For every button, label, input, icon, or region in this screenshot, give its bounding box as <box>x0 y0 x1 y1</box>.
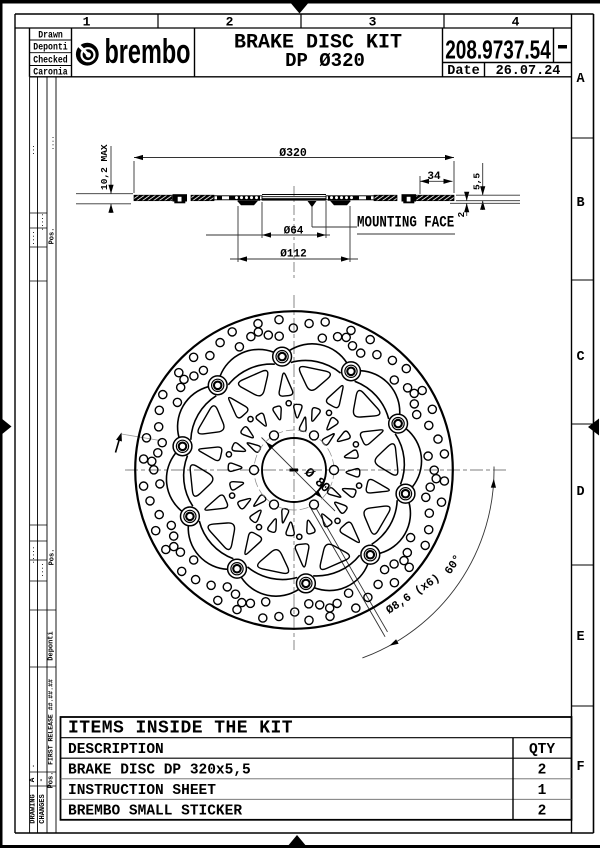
svg-text:2: 2 <box>456 212 467 218</box>
svg-text:MOUNTING FACE: MOUNTING FACE <box>357 214 455 232</box>
svg-text:Caronia: Caronia <box>33 66 68 78</box>
svg-text:ITEMS INSIDE THE KIT: ITEMS INSIDE THE KIT <box>68 719 293 739</box>
svg-text:C: C <box>576 350 584 365</box>
svg-text:Ø320: Ø320 <box>279 147 307 160</box>
svg-text:Pos.: Pos. <box>48 772 56 789</box>
svg-text:Deponti: Deponti <box>48 631 56 660</box>
svg-text:....: .... <box>49 136 56 150</box>
svg-text:2: 2 <box>226 15 234 30</box>
svg-text:D: D <box>576 485 584 500</box>
svg-text:2: 2 <box>538 803 547 819</box>
svg-text:.....: ..... <box>29 546 36 564</box>
svg-text:.....: ..... <box>38 213 45 231</box>
svg-text:4: 4 <box>512 15 520 30</box>
svg-text:Checked: Checked <box>33 53 67 65</box>
svg-text:F: F <box>576 760 584 775</box>
svg-text:A: A <box>576 72 585 87</box>
svg-text:DESCRIPTION: DESCRIPTION <box>68 742 164 758</box>
svg-text:1: 1 <box>83 15 91 30</box>
svg-text:10,2 MAX: 10,2 MAX <box>99 144 110 190</box>
svg-text:Drawn: Drawn <box>38 28 63 40</box>
svg-text:Pos.: Pos. <box>49 549 57 566</box>
svg-text:BREMBO SMALL STICKER: BREMBO SMALL STICKER <box>68 803 242 819</box>
svg-text:26.07.24: 26.07.24 <box>496 64 561 79</box>
svg-text:A: A <box>29 777 37 782</box>
svg-text:3: 3 <box>369 15 377 30</box>
svg-text:brembo: brembo <box>105 34 191 71</box>
svg-text:-: - <box>38 778 46 783</box>
svg-text:208.9737.54: 208.9737.54 <box>445 35 551 65</box>
svg-text:DP Ø320: DP Ø320 <box>285 50 365 72</box>
svg-text:Pos.: Pos. <box>49 228 57 245</box>
svg-text:DRAWING: DRAWING <box>30 794 38 823</box>
svg-text:34: 34 <box>427 171 441 183</box>
svg-text:Ø112: Ø112 <box>280 249 306 261</box>
svg-text:Deponti: Deponti <box>33 41 68 53</box>
svg-text:....: .... <box>38 563 45 577</box>
svg-text:FIRST RELEASE ##.##.##: FIRST RELEASE ##.##.## <box>48 679 55 765</box>
svg-text:2: 2 <box>538 762 547 778</box>
svg-text:QTY: QTY <box>529 742 555 758</box>
svg-text:1: 1 <box>538 783 547 799</box>
svg-text:CHANGES: CHANGES <box>39 794 47 823</box>
svg-text:BRAKE DISC DP 320x5,5: BRAKE DISC DP 320x5,5 <box>68 762 251 778</box>
svg-text:....: .... <box>29 231 36 245</box>
svg-text:B: B <box>576 196 584 211</box>
svg-text:...: ... <box>29 145 36 156</box>
svg-text:E: E <box>576 630 584 645</box>
svg-text:Ø64: Ø64 <box>284 226 304 238</box>
svg-text:.: . <box>29 764 37 768</box>
svg-text:INSTRUCTION SHEET: INSTRUCTION SHEET <box>68 783 216 799</box>
svg-text:5,5: 5,5 <box>472 173 483 190</box>
svg-text:Date: Date <box>447 64 479 79</box>
